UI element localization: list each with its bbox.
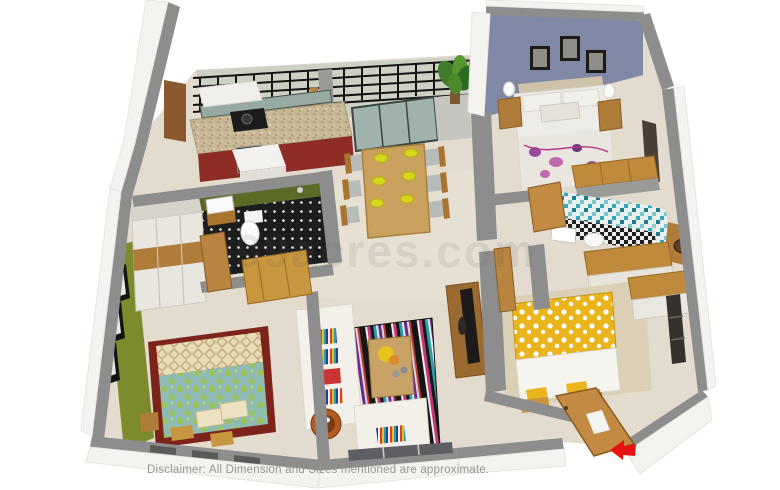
dining-table: [362, 144, 430, 238]
plate: [403, 172, 416, 180]
wardrobe: [128, 193, 206, 311]
floorplan-3d-render: [0, 0, 780, 490]
plate: [401, 195, 414, 203]
shower-head: [297, 187, 303, 193]
bed-pillow: [220, 400, 248, 420]
plate: [375, 154, 388, 162]
double-bed-yellow: [512, 292, 620, 402]
table-lamp: [504, 82, 515, 96]
floorplan-image: 99acres.com Disclaimer: All Dimension an…: [0, 0, 780, 490]
plate: [405, 149, 418, 157]
mug: [393, 371, 400, 378]
open-door: [242, 250, 312, 304]
door-handle: [564, 406, 568, 410]
bedside-table: [140, 412, 159, 432]
mug: [401, 367, 408, 374]
toilet: [584, 233, 604, 247]
open-door: [528, 182, 566, 232]
disclaimer-text: Disclaimer: All Dimension and Sizes ment…: [147, 464, 489, 476]
coffee-table: [368, 336, 414, 398]
picture-frame: [586, 50, 606, 73]
plate: [371, 199, 384, 207]
tall-cabinet: [164, 80, 186, 142]
plate: [373, 177, 386, 185]
picture-frame: [560, 36, 580, 61]
picture-frame: [530, 46, 550, 70]
double-bed-teal: [156, 332, 268, 438]
armchair-cushion: [376, 425, 406, 444]
cooking-pot: [242, 114, 252, 124]
bed-pillow: [540, 102, 580, 122]
bed-pillow: [196, 408, 224, 428]
table-lamp: [604, 84, 615, 98]
